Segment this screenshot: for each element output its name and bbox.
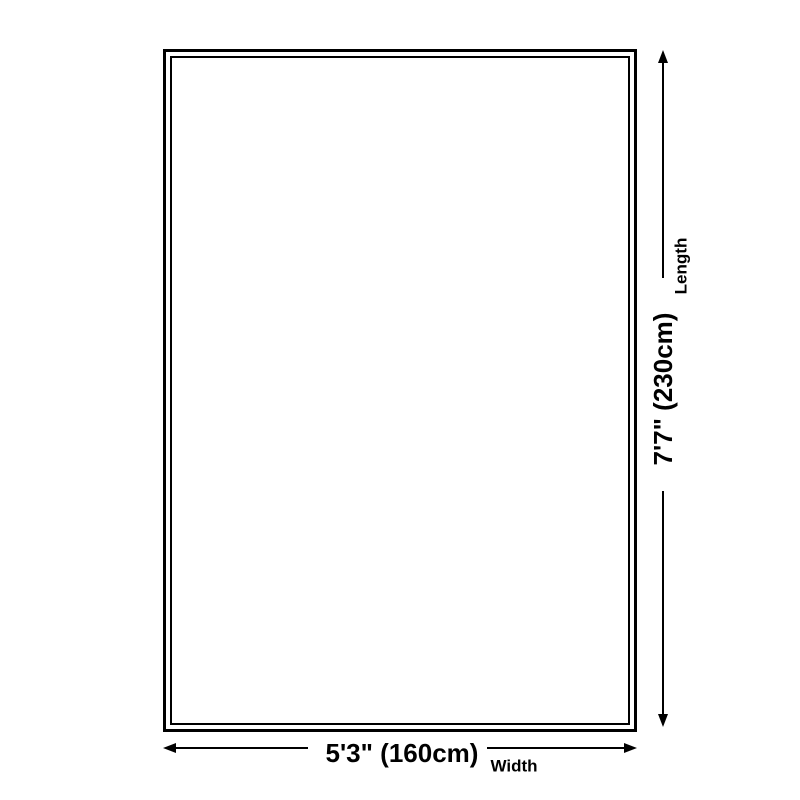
length-dimension-line-top: [662, 62, 664, 278]
width-arrow-left-icon: [163, 743, 176, 753]
width-arrow-right-icon: [624, 743, 637, 753]
width-dimension-line-left: [176, 747, 308, 749]
rug-dimension-diagram: Length 7'7" (230cm) 5'3" (160cm) Width: [0, 0, 800, 800]
length-value-label: 7'7" (230cm): [650, 313, 676, 466]
width-value-label: 5'3" (160cm): [326, 740, 479, 766]
length-arrow-down-icon: [658, 714, 668, 727]
rug-outline: [163, 49, 637, 732]
width-dimension-line-right: [487, 747, 624, 749]
length-axis-label: Length: [673, 238, 690, 295]
width-axis-label: Width: [490, 758, 537, 775]
length-dimension-line-bottom: [662, 491, 664, 715]
rug-outline-inner-border: [170, 56, 630, 725]
